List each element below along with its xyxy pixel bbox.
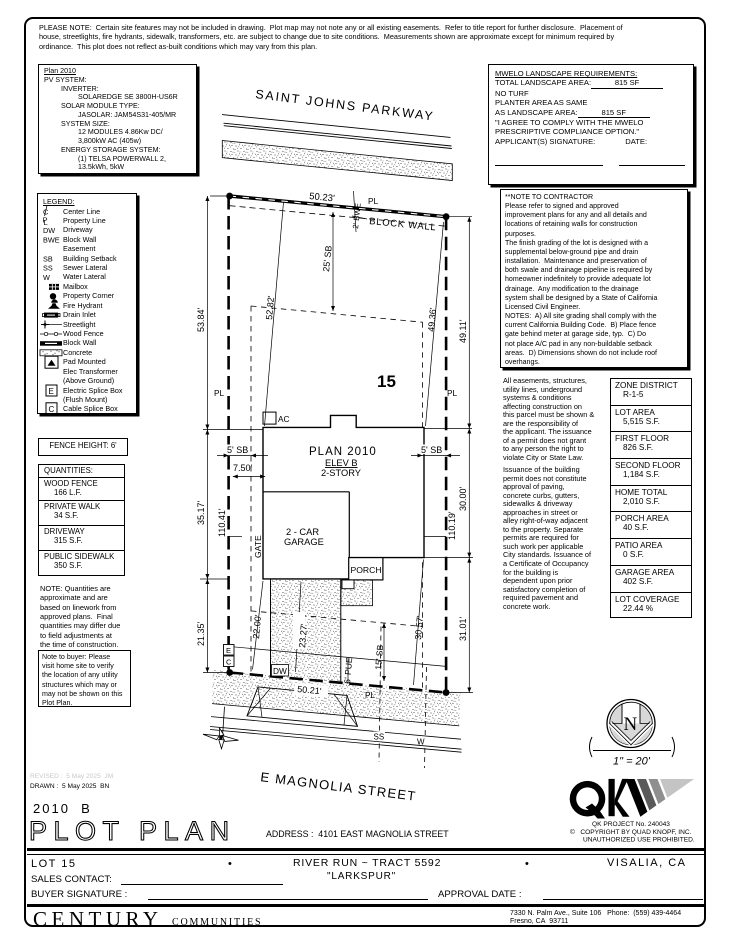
svg-text:C: C xyxy=(49,405,55,414)
svg-text:BWE: BWE xyxy=(43,236,60,245)
svg-text:31.01': 31.01' xyxy=(458,616,468,641)
svg-text:DW: DW xyxy=(273,666,287,676)
svg-text:30.00': 30.00' xyxy=(458,486,468,511)
svg-text:2-STORY: 2-STORY xyxy=(321,468,361,478)
svg-text:E: E xyxy=(49,387,54,396)
svg-text:2 - CAR: 2 - CAR xyxy=(286,527,319,537)
svg-text:23.27': 23.27' xyxy=(297,623,309,648)
svg-text:W: W xyxy=(43,273,50,282)
svg-text:UNAUTHORIZED USE PROHIBITED.: UNAUTHORIZED USE PROHIBITED. xyxy=(583,837,695,844)
svg-text:15: 15 xyxy=(377,372,396,391)
svg-text:GARAGE: GARAGE xyxy=(284,537,324,547)
svg-text:50.23': 50.23' xyxy=(309,191,336,204)
svg-text:5' SB: 5' SB xyxy=(421,445,442,455)
svg-text:7.50': 7.50' xyxy=(233,463,253,473)
svg-text:BLOCK WALL: BLOCK WALL xyxy=(369,216,437,233)
svg-text:C: C xyxy=(226,658,232,667)
svg-text:49.36': 49.36' xyxy=(426,307,438,332)
svg-text:6' PUE: 6' PUE xyxy=(342,657,354,685)
svg-text:15' SB: 15' SB xyxy=(373,644,385,670)
svg-text:5' SB: 5' SB xyxy=(227,445,248,455)
svg-text:PL: PL xyxy=(214,388,225,398)
svg-text:PORCH: PORCH xyxy=(351,565,382,575)
svg-text:35.17': 35.17' xyxy=(196,500,206,525)
svg-text:SB: SB xyxy=(43,254,53,263)
svg-text:PLAN 2010: PLAN 2010 xyxy=(309,446,377,458)
svg-text:49.11': 49.11' xyxy=(458,319,468,343)
svg-text:N: N xyxy=(624,714,638,735)
svg-text:25' SB: 25' SB xyxy=(321,245,334,272)
svg-text:PL: PL xyxy=(368,196,379,206)
svg-text:22.00': 22.00' xyxy=(251,614,263,639)
svg-text:30.57': 30.57' xyxy=(413,615,425,640)
svg-text:1" = 20': 1" = 20' xyxy=(613,756,651,768)
svg-text:21.35': 21.35' xyxy=(196,621,206,646)
svg-text:52.82': 52.82' xyxy=(264,295,276,320)
svg-text:E: E xyxy=(226,646,231,655)
svg-text:ELEV B: ELEV B xyxy=(325,458,358,468)
svg-text:SS: SS xyxy=(43,264,53,273)
svg-text:GATE: GATE xyxy=(253,535,263,558)
svg-text:PL: PL xyxy=(365,690,376,700)
svg-text:53.84': 53.84' xyxy=(196,307,206,332)
svg-text:110.19': 110.19' xyxy=(447,511,457,540)
svg-text:© COPYRIGHT BY QUAD KNOPF, I: © COPYRIGHT BY QUAD KNOPF, INC. xyxy=(570,828,692,836)
svg-text:PL: PL xyxy=(447,388,458,398)
svg-text:110.41': 110.41' xyxy=(217,508,227,537)
svg-text:QK PROJECT No. 240043: QK PROJECT No. 240043 xyxy=(592,821,670,828)
svg-text:2' BWE: 2' BWE xyxy=(351,203,363,230)
svg-text:DW: DW xyxy=(43,226,55,235)
